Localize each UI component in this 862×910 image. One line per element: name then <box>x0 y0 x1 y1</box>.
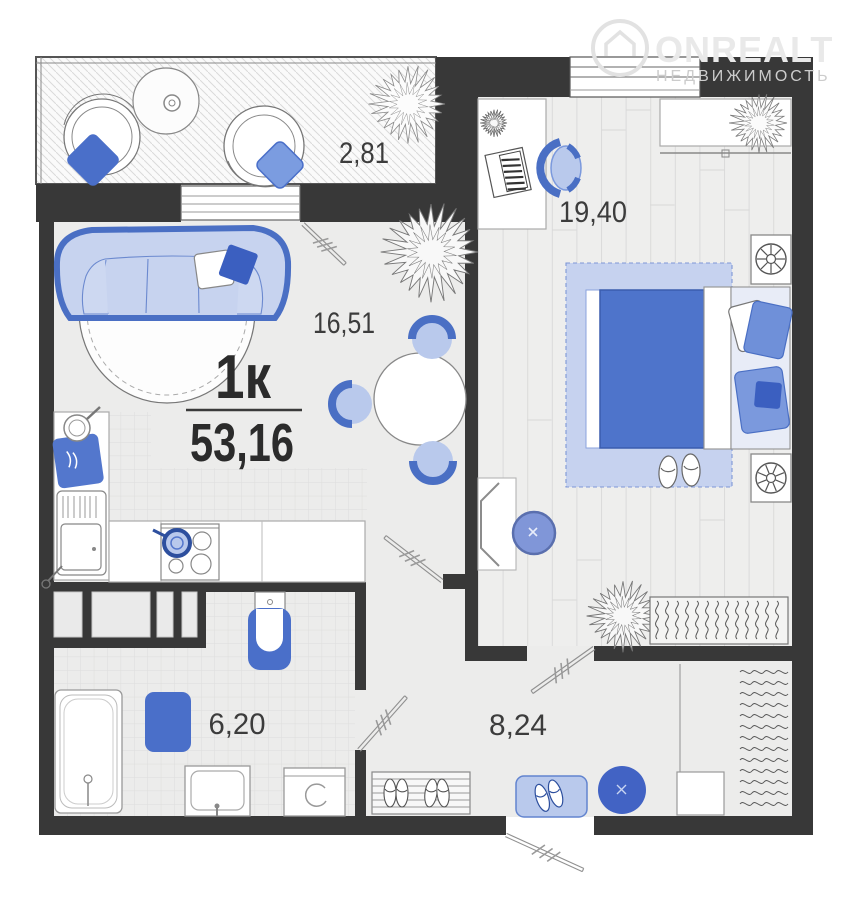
svg-text:6,20: 6,20 <box>209 708 266 741</box>
svg-text:53,16: 53,16 <box>190 413 294 473</box>
svg-text:НЕДВИЖИМОСТЬ: НЕДВИЖИМОСТЬ <box>656 68 831 85</box>
svg-text:ONREALT: ONREALT <box>655 29 833 70</box>
svg-text:8,24: 8,24 <box>489 709 547 742</box>
svg-text:19,40: 19,40 <box>559 196 627 229</box>
svg-text:2,81: 2,81 <box>339 137 389 170</box>
svg-text:16,51: 16,51 <box>313 307 375 340</box>
svg-text:1к: 1к <box>215 343 272 412</box>
